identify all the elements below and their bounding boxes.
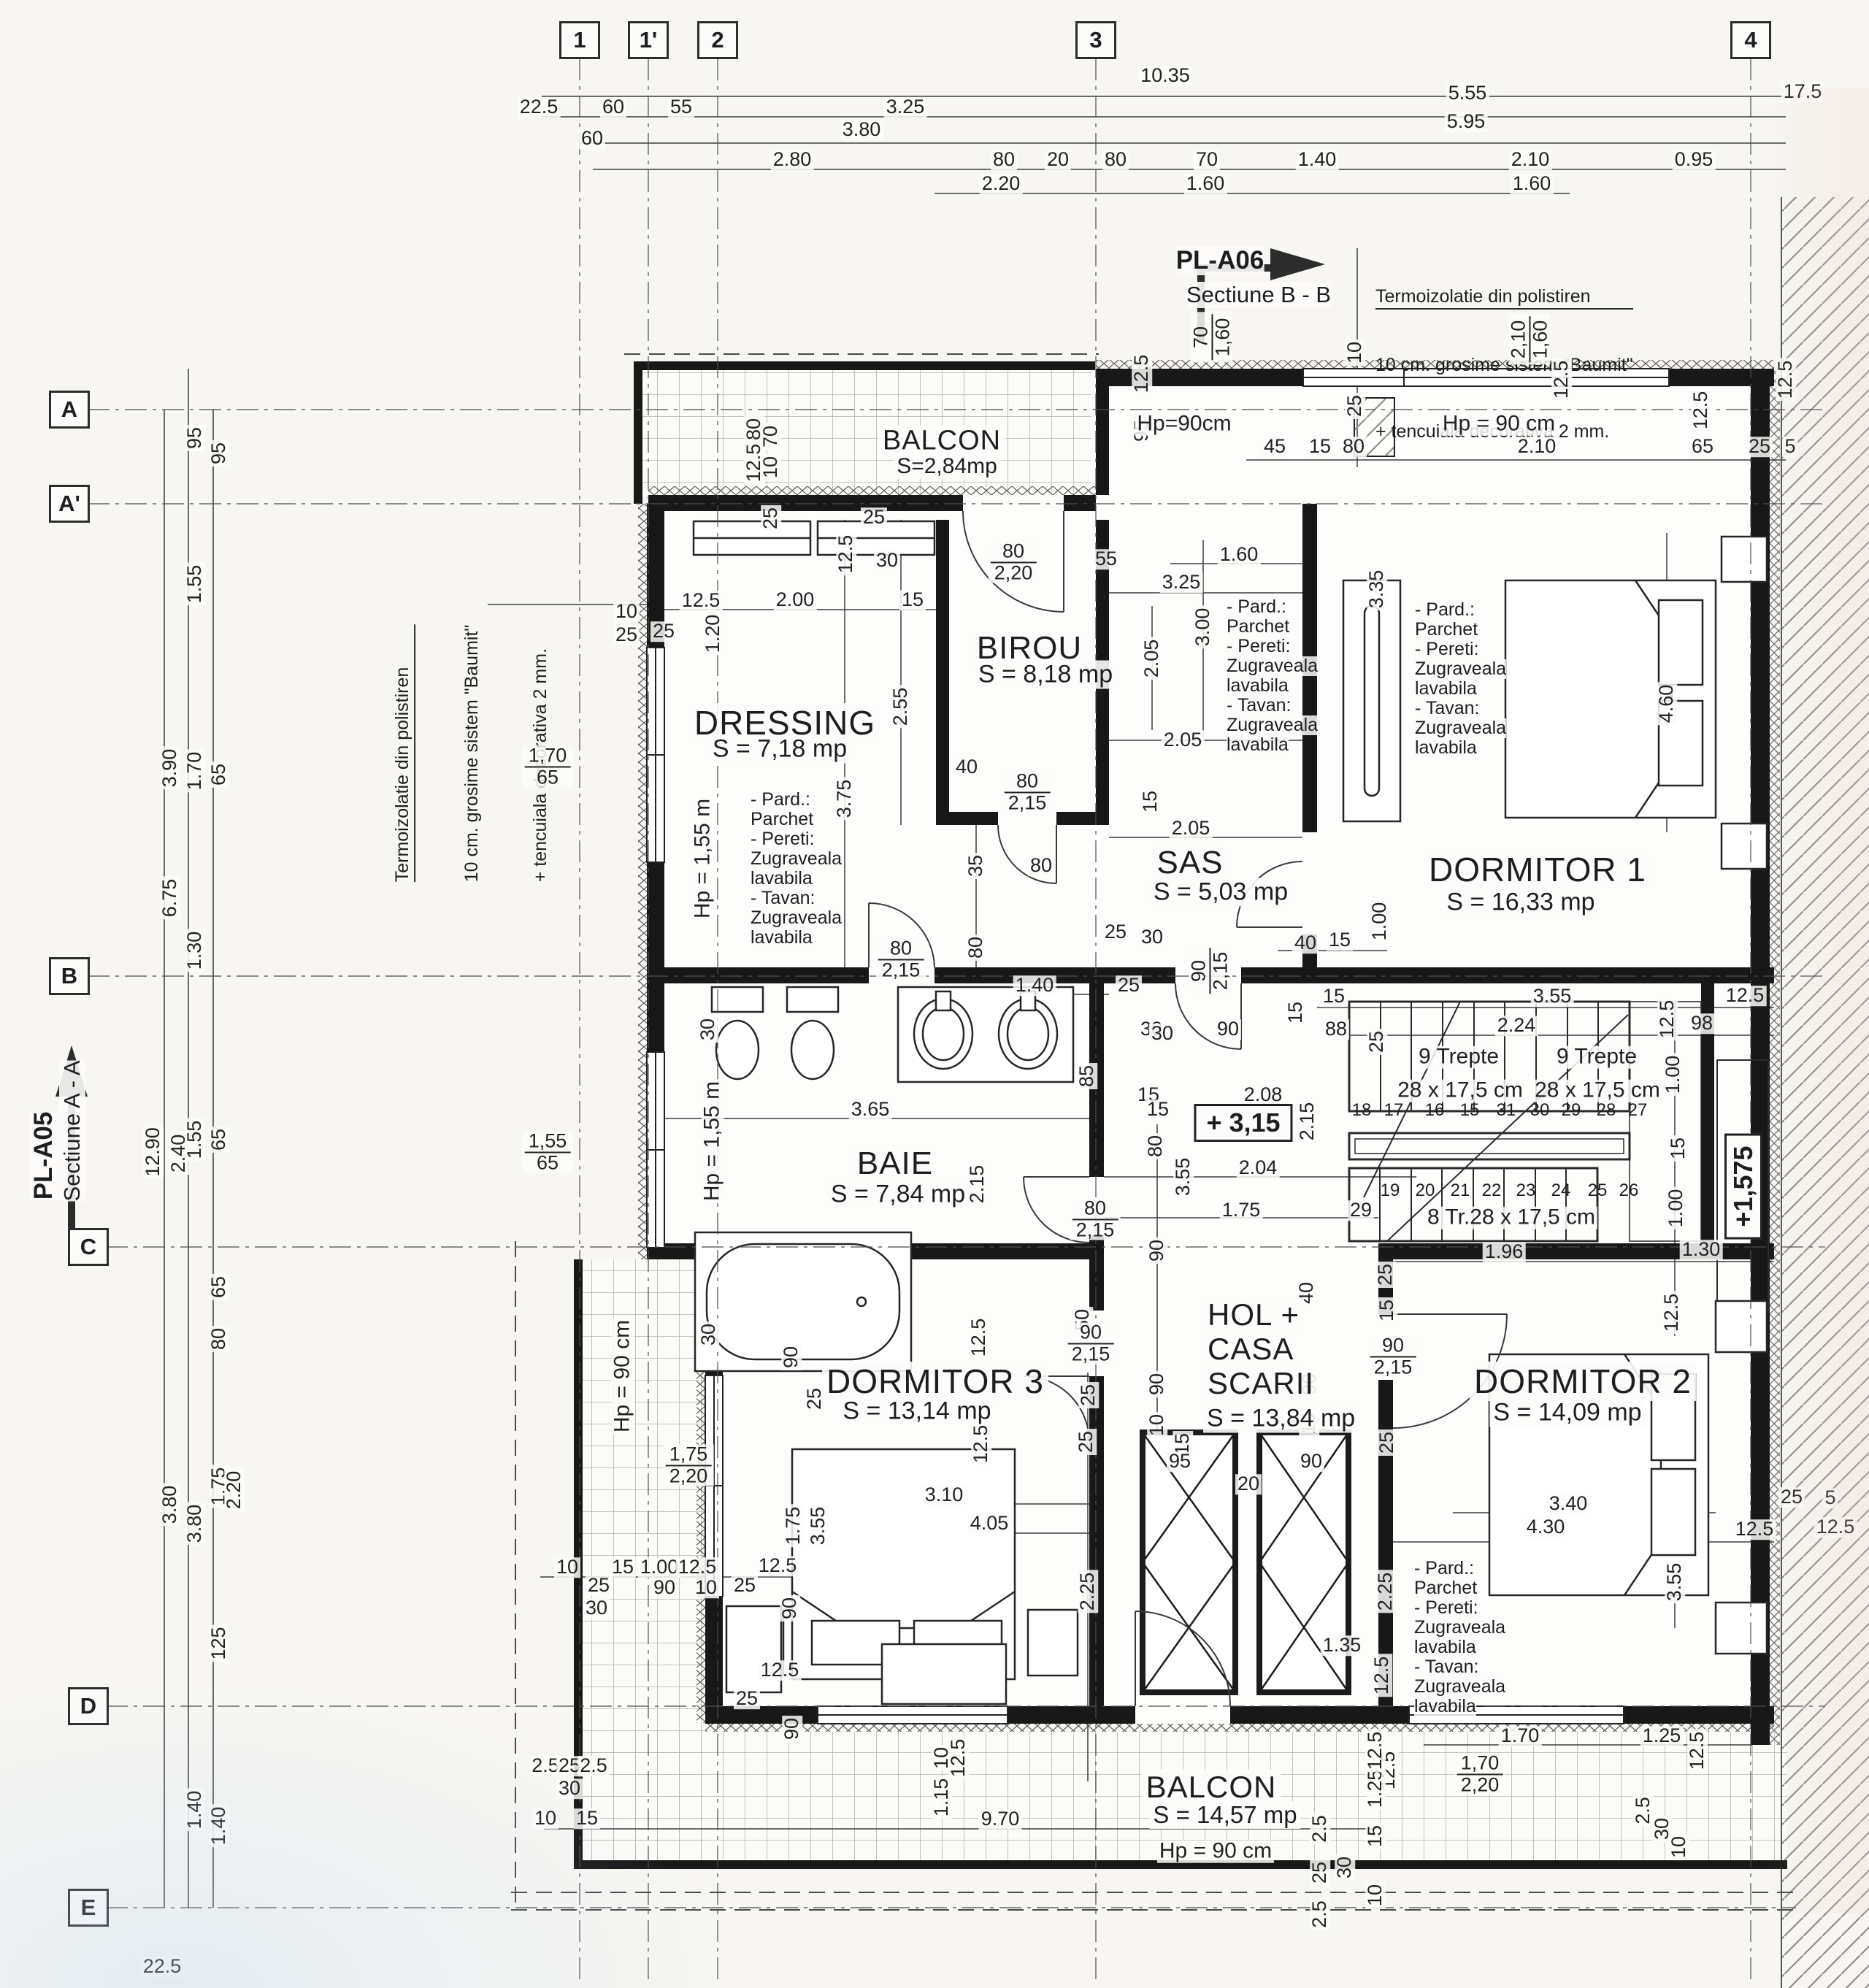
dim-label: 90 [781, 1344, 802, 1370]
dim-label: 80 [209, 1326, 229, 1352]
dim-label: Hp = 90 cm [612, 1318, 634, 1435]
dim-label: 15 [1307, 437, 1333, 457]
dim-label: 5.55 [1446, 83, 1489, 104]
dim-label: 902,15 [1066, 1322, 1116, 1364]
dim-label: 12.5 [836, 533, 856, 576]
dim-label: 1.00 [638, 1557, 681, 1578]
dim-label: 10 [554, 1557, 580, 1578]
axis-bubble-top: 1 [559, 21, 600, 59]
dim-label: 12.5 [756, 1556, 799, 1576]
dim-label: 80 [1028, 856, 1054, 876]
dim-label: 12.5 [676, 1557, 719, 1578]
axis-bubble-left: D [68, 1687, 109, 1725]
dim-label: 15 [899, 590, 926, 610]
axis-bubble-top: 4 [1730, 21, 1771, 59]
dim-label: 2.05 [1170, 818, 1213, 839]
dim-label: 1.20 [703, 613, 724, 656]
dim-label: 802,20 [989, 541, 1039, 583]
dim-label: 10 [1365, 1882, 1386, 1908]
dim-label: 22.5 [141, 1957, 184, 1977]
dim-label: 30 [1335, 1854, 1355, 1881]
dim-label-numerator: 1,70 [525, 745, 571, 767]
dim-label: 12.5 [1776, 358, 1796, 402]
dim-label: 1,702,20 [1455, 1753, 1505, 1795]
dim-label: 15 [1145, 1099, 1171, 1120]
dim-label: 701,60 [1191, 312, 1232, 363]
dim-label: 12.5 [759, 1660, 802, 1681]
dim-label: 3.35 [1367, 568, 1387, 611]
dim-label-numerator: 70 [1191, 315, 1213, 361]
dim-label: 1.75 [783, 1505, 804, 1548]
dim-label: 25 [1778, 1487, 1805, 1508]
dim-label: 85 [1077, 1063, 1097, 1089]
toilet-tank [787, 987, 838, 1012]
floor-plan-sheet: PL-A06 Sectiune B - B PL-A05 Sectiune A … [0, 0, 1869, 1988]
nightstand [1722, 537, 1767, 582]
dim-label: 15 [1365, 1823, 1386, 1849]
dim-label: 25 [861, 507, 887, 528]
dim-label: 25 [1345, 393, 1365, 419]
finish-note-line: Parchet [1415, 620, 1478, 640]
finish-note-line: lavabila [751, 869, 813, 889]
dim-label: 80 [1340, 437, 1367, 457]
dim-label: 90 [780, 1595, 800, 1622]
note-line: 10 cm. grosime sistem "Baumit" [1375, 354, 1633, 377]
dim-label: 3.65 [849, 1099, 892, 1120]
level-badge: + 3,15 [1194, 1104, 1292, 1142]
dim-label: 10 [1147, 1412, 1167, 1438]
dim-label: 29 [1348, 1200, 1374, 1221]
dim-label: 2.04 [1237, 1158, 1280, 1178]
dim-label: 70 [761, 423, 781, 450]
dim-label-denominator: 2,15 [1068, 1344, 1114, 1365]
dim-label: 1.75 [1220, 1200, 1263, 1221]
dim-label: 28 x 17,5 cm [1532, 1080, 1662, 1102]
dim-label: 12.5 [1724, 986, 1767, 1006]
dim-label: 3.55 [1531, 986, 1574, 1007]
dim-label: 2.10 [1509, 150, 1552, 170]
finish-note-line: - Pereti: [1415, 640, 1479, 659]
level-badge: +1,575 [1724, 1133, 1762, 1239]
dim-label: 802,15 [1002, 771, 1053, 813]
dim-label: 25 [613, 625, 640, 645]
dim-label-numerator: 1,75 [666, 1444, 712, 1466]
dim-label: 15 [574, 1808, 600, 1829]
stair-step-number: 25 [1588, 1181, 1608, 1201]
dim-label: 1.55 [185, 563, 205, 606]
dim-label: 90 [1147, 1237, 1167, 1264]
dim-label: 5 [1782, 437, 1797, 457]
dim-label: 25 [650, 621, 677, 642]
dim-label: 12.5 [1365, 1730, 1386, 1773]
dim-label: 12.5 [680, 591, 723, 611]
dim-label: 80 [1102, 150, 1129, 170]
dim-label-denominator: 65 [525, 767, 571, 788]
room-name: HOL + [1203, 1297, 1304, 1332]
dim-label: 12.90 [143, 1125, 164, 1179]
dim-label: 22.5 [518, 97, 561, 118]
stair-step-number: 31 [1497, 1100, 1516, 1121]
dim-label-numerator: 2,10 [1508, 317, 1530, 363]
dim-label: 3.75 [834, 778, 855, 821]
room-name: BALCON [878, 426, 1005, 457]
section-marker-code: PL-A05 [29, 1112, 58, 1200]
dim-label: 9 Trepte [1554, 1046, 1639, 1069]
dim-label: 1.25 [1640, 1726, 1684, 1746]
dim-label: 2.10 [1516, 437, 1559, 457]
dim-label: 25 [1102, 922, 1129, 943]
dim-label: 12.5 [1733, 1519, 1776, 1540]
dim-label: 12.5 [969, 1316, 989, 1359]
dim-label: 802,15 [876, 938, 926, 980]
stair-step-number: 21 [1451, 1181, 1470, 1201]
dim-label: 3.25 [884, 97, 927, 118]
stair-step-number: 15 [1460, 1100, 1480, 1121]
dim-label: 65 [209, 1127, 229, 1153]
dim-label: 3.90 [160, 747, 180, 790]
dim-label: 5.95 [1445, 112, 1488, 132]
dim-label: 65 [209, 1274, 229, 1300]
dim-label-denominator: 2,20 [991, 563, 1037, 583]
stair-step-number: 23 [1516, 1181, 1536, 1201]
dim-label: 80 [966, 934, 986, 961]
dim-label: 1.30 [185, 929, 205, 972]
finish-note-line: lavabila [1415, 679, 1477, 699]
dim-label: 70 [1194, 150, 1220, 170]
dim-label: 25 [1377, 1429, 1397, 1456]
dim-label: 15 [1327, 930, 1353, 951]
dim-label: 1.00 [1663, 1054, 1684, 1097]
dim-label: 25 [586, 1576, 612, 1596]
finish-note-line: - Tavan: [1227, 696, 1291, 715]
dim-label: 8 Tr.28 x 17,5 cm [1425, 1207, 1597, 1229]
dim-label: 40 [953, 757, 980, 778]
stair-step-number: 24 [1551, 1181, 1571, 1201]
room-name: DORMITOR 3 [822, 1362, 1048, 1401]
dim-label: 6.75 [160, 877, 180, 920]
dim-label: 2.00 [774, 590, 817, 610]
dim-label: 95 [209, 440, 229, 467]
dim-label-denominator: 2,15 [878, 960, 924, 980]
dresser [882, 1644, 1006, 1704]
dim-label: 1.30 [1680, 1240, 1723, 1260]
room-name: SCARII [1203, 1366, 1319, 1401]
dim-label: 90 [1298, 1451, 1324, 1472]
dim-label: 98 [1689, 1013, 1715, 1034]
dim-label: 25 [1076, 1429, 1097, 1455]
axis-bubble-top: 1' [628, 21, 669, 59]
dim-label: 10 [613, 602, 640, 622]
dim-label: 10 [693, 1578, 719, 1598]
dim-label-denominator: 1,60 [1530, 317, 1551, 363]
axis-bubble-left: A [49, 391, 90, 429]
dim-label: 1.40 [1296, 150, 1339, 170]
dim-label: 15 [1140, 788, 1161, 815]
dim-label: 2.5 [1310, 1898, 1330, 1930]
dim-label: 2.24 [1495, 1016, 1538, 1036]
nightstand [1722, 824, 1767, 869]
dim-label: 1.60 [1511, 174, 1554, 194]
finish-note-line: - Pereti: [1414, 1598, 1478, 1618]
dim-label: 9.70 [979, 1809, 1022, 1830]
dim-label: 1.70 [1499, 1726, 1542, 1746]
dim-label: 95 [185, 425, 205, 451]
finish-note-line: - Tavan: [1414, 1657, 1478, 1677]
dim-label: 15 [1286, 999, 1306, 1026]
dim-label: 1,5565 [523, 1131, 573, 1173]
axis-bubble-left: C [68, 1228, 109, 1266]
room-area: S = 13,14 mp [839, 1397, 994, 1426]
room-area: S = 5,03 mp [1150, 878, 1292, 907]
stair-step-number: 26 [1619, 1181, 1639, 1201]
dim-label: 1.70 [185, 750, 205, 793]
room-area: S = 8,18 mp [975, 661, 1116, 689]
dim-label: 15 [1321, 986, 1347, 1007]
dim-label: Hp = 90 cm [1157, 1841, 1274, 1863]
dim-label: 3.10 [923, 1485, 966, 1505]
dim-label: 45 [1262, 437, 1288, 457]
dim-label: 4.30 [1524, 1517, 1567, 1538]
dim-label: 10 [1669, 1834, 1689, 1860]
finish-note-line: lavabila [1414, 1697, 1476, 1716]
dim-label: 802,15 [1070, 1198, 1121, 1240]
dim-label: 28 x 17,5 cm [1395, 1080, 1525, 1102]
room-area: S = 14,09 mp [1489, 1399, 1645, 1427]
dim-label: 10 [1345, 339, 1365, 366]
finish-note-line: - Pereti: [1227, 637, 1291, 656]
stair-step-number: 18 [1352, 1100, 1372, 1121]
dim-label: Hp = 1,55 m [702, 1079, 724, 1203]
note-line: 10 cm. grosime sistem "Baumit" [461, 625, 483, 883]
dim-label: 2.5 [1310, 1813, 1330, 1845]
dim-label: 25 [1310, 1860, 1330, 1886]
note-line: Termoizolatie din polistiren [1375, 285, 1633, 310]
finish-note-line: lavabila [1227, 676, 1289, 696]
dim-label: Hp = 1,55 m [692, 797, 715, 921]
dim-label: 90 [782, 1716, 802, 1742]
dim-label: 90 [1215, 1019, 1241, 1040]
dim-label-numerator: 90 [1370, 1335, 1416, 1357]
dim-label-denominator: 65 [525, 1153, 571, 1173]
dim-label: 2.20 [224, 1469, 245, 1512]
room-area: S = 7,18 mp [709, 735, 851, 764]
section-b-arrow [1270, 248, 1325, 280]
finish-note-line: - Tavan: [751, 889, 815, 908]
dim-label: 12.5 [1132, 353, 1152, 396]
finish-note-line: - Pard.: [1227, 597, 1286, 617]
stair-step-number: 22 [1482, 1181, 1502, 1201]
dim-label: 25 [734, 1689, 760, 1709]
dim-label: 25 [732, 1576, 758, 1596]
dim-label: 25 [761, 505, 781, 531]
dim-label: 125 [209, 1624, 229, 1662]
insulation-note-top: Termoizolatie din polistiren 10 cm. gros… [1375, 241, 1633, 488]
dim-label: 12.5 [1814, 1517, 1857, 1538]
dim-label-numerator: 1,70 [1457, 1753, 1503, 1775]
dim-label: 25 [1078, 1382, 1099, 1408]
dim-label: 3.55 [1665, 1561, 1685, 1604]
stair-step-number: 16 [1425, 1100, 1445, 1121]
dim-label: 3.80 [840, 120, 883, 140]
axis-bubble-left: B [49, 957, 90, 995]
dim-label: 1.00 [1666, 1187, 1686, 1230]
neighbor-hatch [1781, 197, 1869, 1988]
dim-label: 25 [1375, 1262, 1396, 1288]
dim-label-numerator: 90 [1068, 1322, 1114, 1344]
dim-label: 9 Trepte [1416, 1046, 1501, 1069]
dim-label: 4.05 [968, 1513, 1011, 1534]
room-name: BALCON [1142, 1770, 1281, 1805]
section-marker-label: Sectiune A - A [59, 1060, 85, 1201]
dim-label: 5 [1822, 1488, 1838, 1508]
dim-label: 25 [1116, 975, 1142, 996]
finish-note-line: Zugraveala [751, 849, 842, 869]
dim-label: 12.5 [971, 1423, 991, 1466]
dim-label: 3.40 [1547, 1494, 1590, 1514]
room-name: DORMITOR 1 [1424, 850, 1651, 889]
dim-label: 30 [1139, 927, 1165, 948]
finish-note-line: - Pard.: [751, 790, 810, 810]
dim-label: 2.55 [891, 686, 911, 729]
dim-label: 1.40 [209, 1805, 229, 1848]
dim-label: 902,15 [1189, 946, 1230, 997]
finish-note-line: lavabila [1415, 738, 1477, 758]
room-area: S=2,84mp [893, 454, 1001, 479]
axis-bubble-top: 3 [1075, 21, 1116, 59]
room-area: S = 16,33 mp [1443, 889, 1598, 917]
dim-label: 2.80 [771, 150, 814, 170]
dim-label: 30 [556, 1778, 583, 1799]
dim-label-numerator: 90 [1189, 948, 1210, 994]
finish-note-line: Zugraveala [1414, 1618, 1505, 1638]
dim-label: 2.5 [577, 1756, 610, 1776]
dim-label: 60 [600, 97, 626, 118]
dim-label: Hp = 90 cm [1440, 413, 1557, 436]
dim-label: 20 [1235, 1474, 1262, 1494]
stair-step-number: 29 [1562, 1100, 1581, 1121]
room-area: S = 7,84 mp [827, 1181, 969, 1209]
section-marker-label: Sectiune B - B [1186, 282, 1331, 308]
axis-bubble-top: 2 [697, 21, 738, 59]
dim-label: 1.60 [1218, 545, 1261, 565]
dim-label: 17.5 [1781, 82, 1824, 102]
dim-label: 12.5 [1551, 358, 1572, 402]
dim-label-denominator: 2,15 [1005, 793, 1051, 813]
dim-label: 1.15 [932, 1776, 952, 1819]
dim-label: 3.25 [1160, 572, 1203, 593]
finish-note-line: - Tavan: [1415, 699, 1479, 718]
finish-note-line: Zugraveala [751, 908, 842, 928]
dim-label-denominator: 2,20 [666, 1466, 712, 1486]
finish-note-line: Zugraveala [1414, 1677, 1505, 1697]
dim-label: 12.5 [1372, 1654, 1392, 1697]
stair-step-number: 28 [1597, 1100, 1616, 1121]
dim-label: 1.55 [185, 1118, 205, 1162]
dim-label: 2.25 [1375, 1570, 1396, 1613]
dim-label: 2.08 [1242, 1085, 1285, 1105]
dim-label: 55 [1093, 549, 1119, 569]
dim-label: 0.95 [1673, 150, 1716, 170]
finish-note-line: Zugraveala [1415, 718, 1506, 738]
room-area: S = 14,57 mp [1149, 1801, 1300, 1829]
dim-label: 20 [1045, 150, 1071, 170]
dim-label: 30 [874, 550, 900, 571]
room-name: CASA [1203, 1332, 1298, 1367]
dim-label: 95 [1167, 1451, 1193, 1472]
dim-label: 902,15 [1368, 1335, 1419, 1377]
dim-label: 1.60 [1184, 174, 1227, 194]
dim-label: 1.35 [1321, 1635, 1364, 1656]
dim-label: 15 [610, 1557, 636, 1578]
dim-label: 3.55 [808, 1505, 829, 1548]
dim-label: 10 [532, 1808, 559, 1829]
dim-label: 3.55 [1173, 1156, 1194, 1199]
finish-note-line: Parchet [1227, 617, 1289, 637]
dim-label: 30 [583, 1598, 610, 1619]
dim-label: 65 [1689, 437, 1716, 457]
dim-label-numerator: 80 [1072, 1198, 1118, 1220]
axis-bubble-left: E [68, 1889, 109, 1927]
note-line: Termoizolatie din polistiren [391, 625, 415, 883]
dim-label: 90 [651, 1578, 678, 1598]
section-marker-code: PL-A06 [1176, 246, 1264, 275]
dim-label: 2.05 [1162, 730, 1205, 751]
dim-label: 65 [209, 761, 229, 788]
axis-bubble-left: A' [49, 485, 90, 523]
stair-step-number: 27 [1628, 1100, 1648, 1121]
dim-label: 25 [1746, 437, 1773, 457]
dim-label: 3.80 [185, 1502, 205, 1546]
dim-label: 2,101,60 [1508, 315, 1550, 365]
dim-label: 12.5 [948, 1737, 969, 1780]
finish-note-line: Zugraveala [1227, 715, 1318, 735]
finish-note-line: Parchet [1414, 1578, 1477, 1598]
dim-label: 12.5 [1657, 998, 1678, 1041]
dim-label: 2.15 [967, 1163, 988, 1206]
dim-label: 3.80 [160, 1484, 180, 1527]
dim-label: 1.00 [1370, 900, 1390, 943]
room-area: S = 13,84 mp [1203, 1405, 1359, 1433]
dim-label: 60 [579, 128, 605, 149]
finish-note-line: Parchet [751, 810, 813, 829]
nightstand [1716, 1301, 1767, 1352]
dim-label: 12.5 [1687, 1730, 1708, 1773]
dim-label: 25 [1367, 1029, 1387, 1055]
dim-label: 30 [698, 1016, 718, 1043]
toilet-bowl [716, 1021, 759, 1079]
dim-label-denominator: 2,15 [1210, 948, 1231, 994]
finish-note-line: Zugraveala [1415, 659, 1506, 679]
dim-label: 55 [668, 97, 694, 118]
dim-label: 1.40 [1013, 975, 1056, 996]
dim-label: 15 [1668, 1135, 1689, 1162]
finish-note-line: lavabila [1227, 735, 1289, 755]
nightstand [1716, 1603, 1767, 1654]
finish-note-line: Zugraveala [1227, 656, 1318, 676]
dim-label-numerator: 80 [1005, 771, 1051, 793]
stair-step-number: 30 [1530, 1100, 1550, 1121]
dim-label: 1,752,20 [664, 1444, 714, 1486]
dim-label: 1.96 [1483, 1242, 1526, 1262]
dim-label: 10.35 [1138, 66, 1192, 86]
dim-label: 12.5 [1662, 1292, 1682, 1335]
stair-step-number: 19 [1381, 1181, 1400, 1201]
dim-label-numerator: 1,55 [525, 1131, 571, 1153]
finish-note-line: - Pereti: [751, 829, 815, 849]
finish-note-line: - Pard.: [1415, 600, 1475, 620]
room-name: SAS [1152, 845, 1227, 881]
room-name: DORMITOR 2 [1470, 1362, 1696, 1401]
